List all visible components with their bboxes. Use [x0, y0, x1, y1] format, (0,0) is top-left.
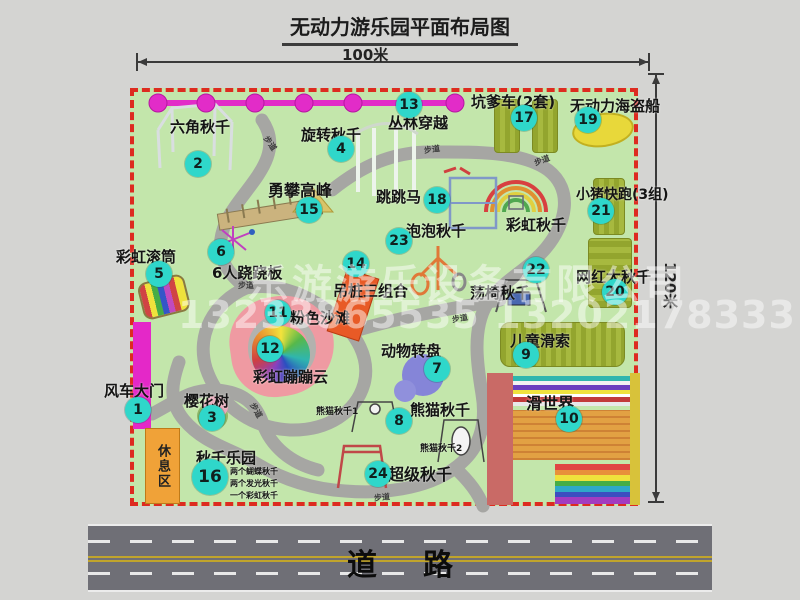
arrow-right-icon	[639, 58, 648, 66]
rest-area-label: 休息区	[153, 444, 172, 489]
slide-world-rainbow-slide	[555, 464, 630, 504]
road: 道路	[88, 524, 712, 592]
dim-tick-bottom	[648, 501, 664, 503]
road-label: 道路	[111, 540, 735, 584]
pit-car-strip-1	[494, 99, 520, 153]
slide-world-yellow-bar	[630, 373, 640, 505]
windmill-gate-bar	[133, 322, 151, 429]
pit-car-strip-2	[532, 99, 558, 153]
arrow-down-icon	[652, 492, 660, 501]
slide-world-stripes	[513, 376, 630, 406]
rainbow-bounce-cloud-shape	[252, 326, 310, 382]
dim-tick-right	[648, 53, 650, 71]
kids-zipline-strip	[500, 322, 625, 367]
right-dimension-line	[655, 74, 657, 502]
slide-world-orange-area	[513, 410, 630, 460]
top-dimension-line	[137, 61, 649, 63]
arrow-left-icon	[138, 58, 147, 66]
big-swing-square	[588, 238, 632, 308]
height-dimension-label: 120米	[660, 262, 681, 308]
cherry-tree-blossom	[203, 396, 228, 418]
park-layout-map: 无动力游乐园平面布局图 100米 120米	[0, 0, 800, 600]
slide-world-shape	[487, 368, 640, 505]
width-dimension-label: 100米	[342, 44, 388, 65]
animal-turntable-small-shape	[394, 380, 416, 402]
jungle-crossing-line	[150, 100, 460, 106]
piggy-run-strip	[593, 178, 625, 235]
arrow-up-icon	[652, 75, 660, 84]
page-title: 无动力游乐园平面布局图	[282, 11, 518, 46]
slide-world-red-strip	[487, 373, 513, 505]
rest-area-box: 休息区	[145, 428, 180, 504]
